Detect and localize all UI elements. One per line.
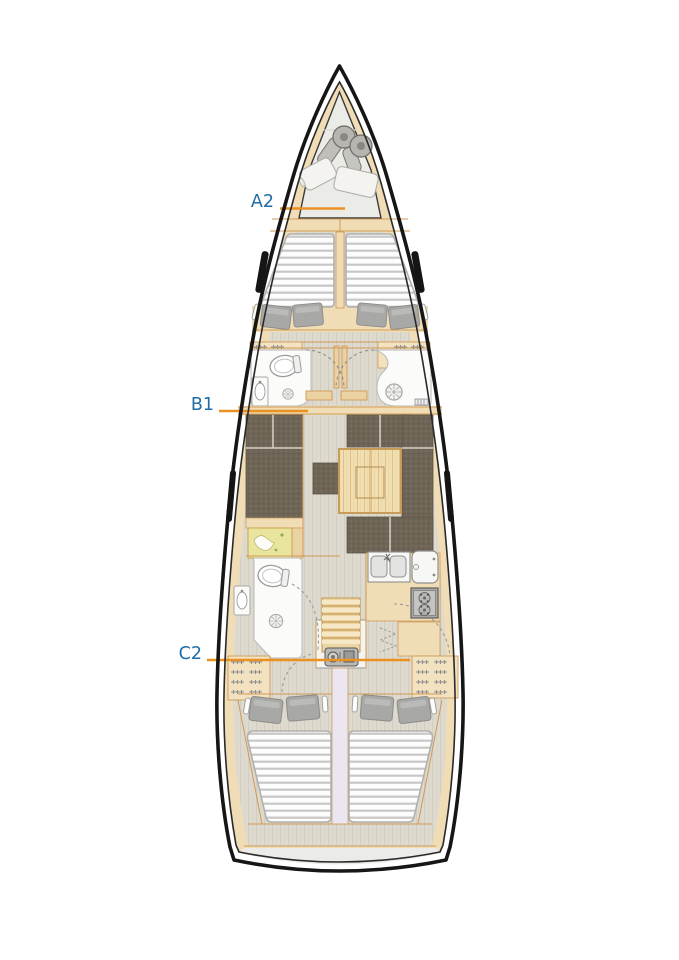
centerline-bulkhead	[332, 668, 348, 824]
washbasin-icon	[252, 377, 268, 406]
reading-light-icon	[322, 696, 328, 712]
hanging-locker-starboard	[412, 656, 458, 698]
yacht-layout-page: A2 B1 C2	[0, 0, 679, 960]
refrigerator-icon	[412, 551, 438, 583]
engine-icon	[325, 648, 358, 666]
companionway-steps-icon	[322, 598, 360, 652]
pillows-icon	[397, 696, 432, 724]
saloon-table	[339, 449, 401, 513]
shower-drain-icon	[386, 384, 402, 400]
pillows-icon	[360, 695, 394, 722]
label-a2: A2	[251, 192, 274, 212]
pillows-icon	[249, 696, 284, 724]
washbasin-icon	[234, 586, 250, 615]
label-b1: B1	[191, 395, 214, 415]
galley-cabinet	[398, 622, 440, 656]
companionway	[316, 598, 366, 668]
shower-drain-icon	[283, 389, 294, 400]
shower-drain-icon	[269, 614, 282, 627]
door-leaf	[306, 391, 332, 400]
stool	[313, 463, 340, 494]
galley-double-sink-icon	[368, 552, 410, 582]
label-c2: C2	[179, 644, 202, 664]
pillows-icon	[286, 695, 320, 722]
door-leaf	[341, 391, 367, 400]
reading-light-icon	[352, 696, 358, 712]
vent-grate-icon	[415, 399, 428, 405]
forward-head-port	[251, 350, 311, 406]
sofa-l-shaped	[246, 415, 303, 518]
chart-table	[246, 518, 303, 558]
yacht-layout-diagram: A2 B1 C2	[0, 0, 679, 960]
